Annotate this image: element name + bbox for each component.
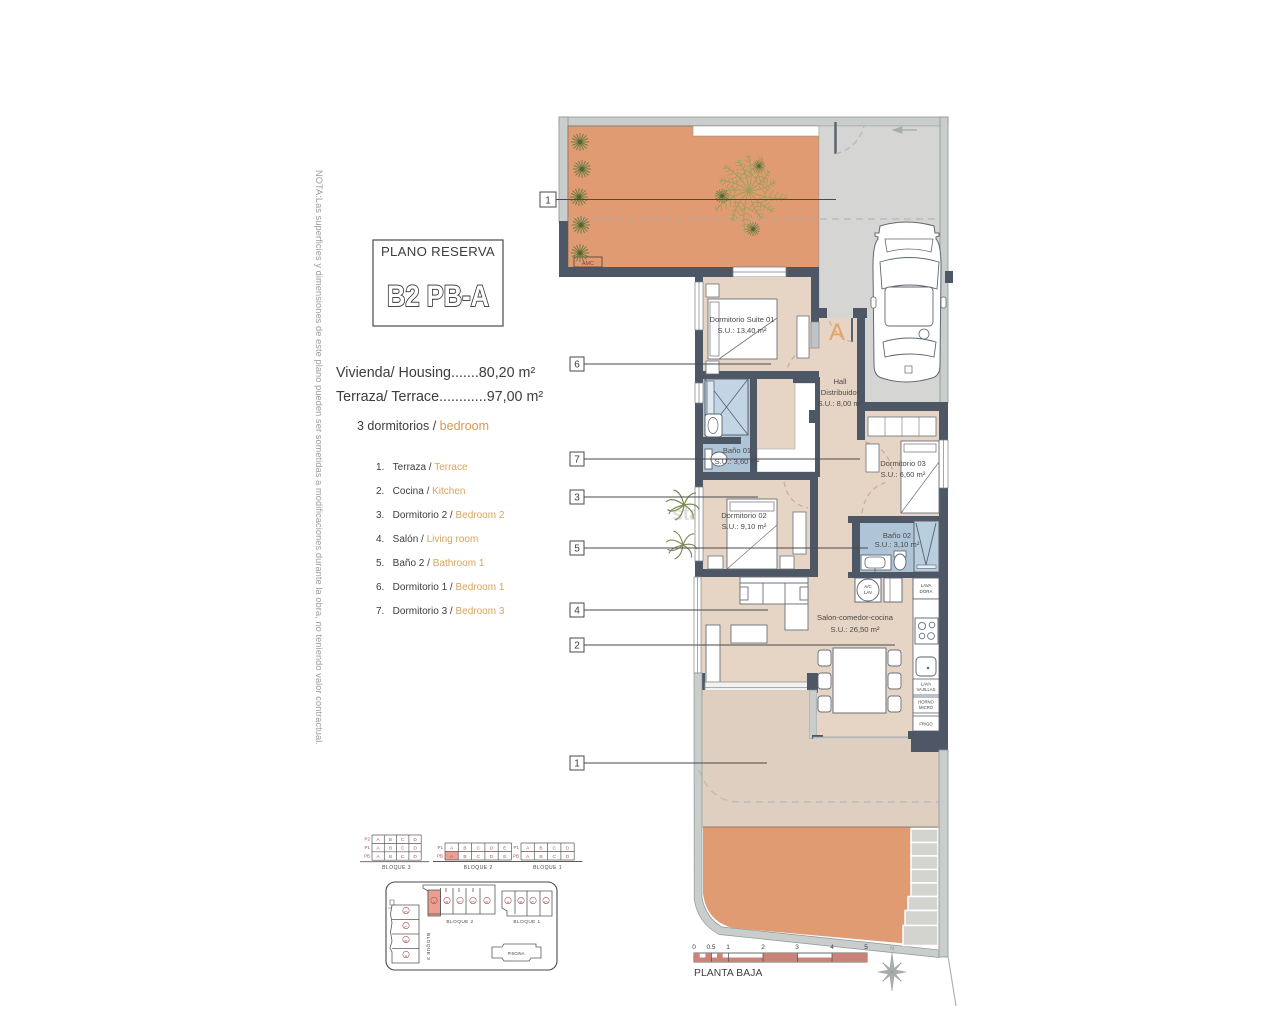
- svg-text:D: D: [413, 837, 417, 843]
- svg-text:C: C: [401, 854, 405, 860]
- svg-text:Dormitorio 03: Dormitorio 03: [880, 459, 926, 468]
- svg-text:7. Dormitorio 3 / Bedroom 3: 7. Dormitorio 3 / Bedroom 3: [376, 606, 505, 617]
- svg-text:PB: PB: [437, 853, 443, 858]
- svg-text:Distribuidor: Distribuidor: [821, 388, 860, 397]
- svg-text:MICRO: MICRO: [919, 705, 934, 710]
- svg-text:HORNO: HORNO: [918, 700, 934, 705]
- svg-text:1. Terraza / Terrace: 1. Terraza / Terrace: [376, 462, 468, 473]
- svg-text:B: B: [389, 837, 392, 843]
- svg-text:3: 3: [795, 944, 799, 951]
- svg-text:BLOQUE 2: BLOQUE 2: [464, 865, 493, 871]
- svg-text:5: 5: [864, 944, 868, 951]
- svg-text:Baño 01: Baño 01: [723, 446, 751, 455]
- svg-text:E: E: [503, 845, 506, 851]
- svg-text:P1: P1: [364, 845, 370, 850]
- svg-text:3: 3: [574, 493, 580, 504]
- svg-text:C: C: [477, 854, 481, 860]
- svg-text:E: E: [503, 854, 506, 860]
- svg-text:B: B: [389, 846, 392, 852]
- svg-text:2: 2: [574, 641, 580, 652]
- svg-text:4: 4: [830, 944, 834, 951]
- svg-text:S.U.: 8,00 m²: S.U.: 8,00 m²: [818, 399, 863, 408]
- svg-text:C: C: [401, 846, 405, 852]
- svg-text:B: B: [389, 854, 392, 860]
- svg-text:Dormitorio Suite 01: Dormitorio Suite 01: [710, 315, 775, 324]
- svg-text:PB: PB: [364, 854, 370, 859]
- svg-text:D: D: [490, 854, 494, 860]
- svg-text:C: C: [553, 854, 557, 860]
- svg-text:B: B: [404, 939, 407, 945]
- svg-text:5: 5: [574, 544, 580, 555]
- svg-text:D: D: [566, 845, 570, 851]
- svg-text:A/C: A/C: [864, 584, 872, 589]
- svg-text:5. Baño 2 / Bathroom 1: 5. Baño 2 / Bathroom 1: [376, 558, 485, 569]
- svg-text:B2 PB-A: B2 PB-A: [387, 280, 489, 313]
- svg-text:7: 7: [574, 455, 580, 466]
- svg-text:C: C: [477, 845, 481, 851]
- svg-text:LAVA: LAVA: [921, 583, 932, 588]
- svg-text:P2: P2: [364, 837, 370, 842]
- svg-text:LAV: LAV: [864, 590, 872, 595]
- svg-text:S.U.: 3,60 m²: S.U.: 3,60 m²: [715, 457, 760, 466]
- svg-text:B: B: [463, 854, 466, 860]
- svg-text:S.U.: 13,40 m²: S.U.: 13,40 m²: [718, 326, 767, 335]
- svg-text:P1: P1: [437, 845, 443, 850]
- svg-text:PLANO RESERVA: PLANO RESERVA: [381, 244, 495, 259]
- svg-text:0.5: 0.5: [706, 944, 715, 951]
- svg-text:Vivienda/ Housing.......80,20: Vivienda/ Housing.......80,20 m²: [336, 365, 535, 381]
- svg-text:NOTA:Las superficies y dimensi: NOTA:Las superficies y dimensiones de es…: [314, 170, 324, 745]
- svg-text:D: D: [413, 854, 417, 860]
- svg-text:Terraza/ Terrace............97: Terraza/ Terrace............97,00 m²: [336, 389, 543, 405]
- svg-text:1: 1: [574, 759, 580, 770]
- svg-text:C: C: [553, 845, 557, 851]
- svg-text:S.U.: 3,10 m²: S.U.: 3,10 m²: [875, 540, 920, 549]
- svg-text:Baño 02: Baño 02: [883, 531, 911, 540]
- svg-text:1: 1: [545, 196, 551, 207]
- svg-text:BLOQUE 2: BLOQUE 2: [446, 919, 473, 925]
- svg-text:S.U.: 9,10 m²: S.U.: 9,10 m²: [722, 522, 767, 531]
- svg-text:PISCINA: PISCINA: [508, 951, 525, 956]
- svg-text:VAJILLAS: VAJILLAS: [917, 687, 936, 692]
- svg-text:Salon-comedor-cocina: Salon-comedor-cocina: [817, 613, 894, 622]
- svg-text:4: 4: [574, 606, 580, 617]
- svg-text:2: 2: [761, 944, 765, 951]
- svg-text:D: D: [490, 845, 494, 851]
- svg-text:P1: P1: [513, 845, 519, 850]
- svg-text:3. Dormitorio 2 / Bedroom 2: 3. Dormitorio 2 / Bedroom 2: [376, 510, 505, 521]
- svg-text:BLOQUE 3: BLOQUE 3: [382, 865, 411, 871]
- svg-text:6: 6: [574, 360, 580, 371]
- svg-text:E: E: [485, 900, 488, 906]
- svg-text:B: B: [539, 854, 542, 860]
- svg-text:FRIGO: FRIGO: [919, 722, 933, 727]
- svg-text:C: C: [401, 837, 405, 843]
- svg-text:AMC: AMC: [582, 261, 594, 267]
- svg-text:BLOQUE 1: BLOQUE 1: [513, 919, 540, 925]
- svg-text:2. Cocina / Kitchen: 2. Cocina / Kitchen: [376, 486, 466, 497]
- svg-text:LAVA: LAVA: [921, 682, 931, 687]
- svg-text:6. Dormitorio 1 / Bedroom 1: 6. Dormitorio 1 / Bedroom 1: [376, 582, 505, 593]
- svg-text:PB: PB: [513, 853, 519, 858]
- svg-text:D: D: [413, 846, 417, 852]
- svg-text:A: A: [829, 319, 845, 346]
- svg-text:S.U.: 6,60 m²: S.U.: 6,60 m²: [881, 470, 926, 479]
- svg-text:Hall: Hall: [833, 377, 846, 386]
- svg-text:B: B: [539, 845, 542, 851]
- svg-text:BLOQUE 3: BLOQUE 3: [425, 933, 431, 960]
- svg-text:1: 1: [726, 944, 730, 951]
- svg-text:0: 0: [692, 944, 696, 951]
- svg-text:4. Salón / Living room: 4. Salón / Living room: [376, 534, 478, 545]
- svg-text:D: D: [566, 854, 570, 860]
- svg-text:S.U.: 26,50 m²: S.U.: 26,50 m²: [831, 625, 880, 634]
- svg-text:DORA: DORA: [919, 589, 932, 594]
- svg-text:B: B: [463, 845, 466, 851]
- svg-text:B: B: [445, 900, 448, 906]
- svg-text:PLANTA BAJA: PLANTA BAJA: [694, 968, 762, 979]
- svg-text:BLOQUE 1: BLOQUE 1: [533, 865, 562, 871]
- svg-text:3 dormitorios / bedroom: 3 dormitorios / bedroom: [357, 419, 489, 433]
- svg-text:N: N: [890, 946, 894, 952]
- svg-text:Dormitorio 02: Dormitorio 02: [721, 511, 767, 520]
- svg-text:B: B: [519, 900, 522, 906]
